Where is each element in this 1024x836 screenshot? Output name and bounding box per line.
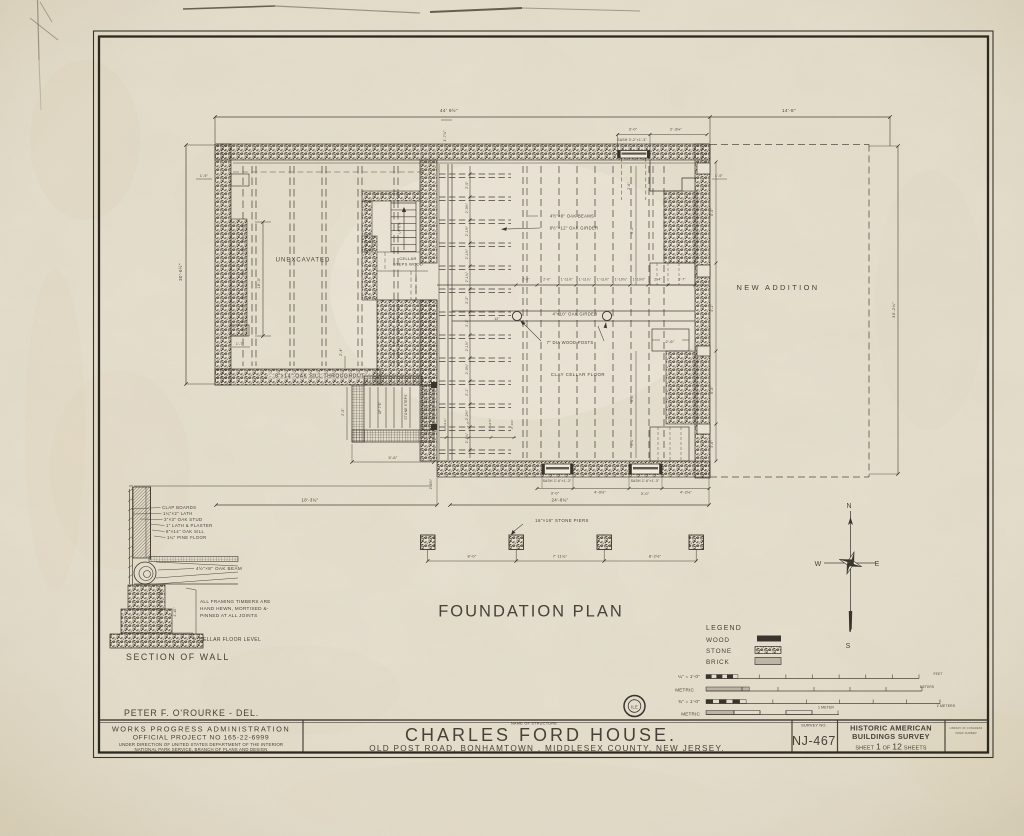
svg-text:2'-1½": 2'-1½": [465, 225, 469, 236]
svg-text:SASH 3'-2"×1'-3": SASH 3'-2"×1'-3": [617, 138, 647, 142]
svg-text:4½"×8" OAK BEAMS: 4½"×8" OAK BEAMS: [550, 214, 594, 219]
svg-text:STONE STEPS: STONE STEPS: [404, 394, 408, 420]
svg-text:2'-4": 2'-4": [654, 278, 662, 282]
svg-text:3'-1": 3'-1": [630, 438, 634, 446]
svg-text:2'-0": 2'-0": [522, 278, 530, 282]
svg-text:3'-6": 3'-6": [710, 440, 714, 448]
svg-text:2'-0": 2'-0": [465, 181, 469, 189]
svg-text:CLAY CELLAR FLOOR: CLAY CELLAR FLOOR: [551, 372, 605, 377]
svg-text:4'-1": 4'-1": [710, 304, 714, 312]
svg-text:2'-6": 2'-6": [666, 339, 675, 344]
svg-text:4½"×8" OAK BEAM: 4½"×8" OAK BEAM: [196, 565, 242, 571]
svg-text:24'-8¾": 24'-8¾": [552, 498, 569, 503]
svg-text:FEET: FEET: [934, 672, 943, 676]
svg-text:1" LATH & PLASTER: 1" LATH & PLASTER: [166, 523, 213, 528]
svg-text:30'-2¼": 30'-2¼": [891, 302, 896, 318]
svg-text:METRIC: METRIC: [681, 712, 700, 717]
svg-text:METERS: METERS: [920, 685, 934, 689]
svg-text:BRICK: BRICK: [706, 659, 730, 666]
svg-text:N: N: [846, 503, 851, 510]
svg-text:2'-3⅛": 2'-3⅛": [670, 128, 682, 132]
svg-text:8"×14" OAK SILL: 8"×14" OAK SILL: [166, 529, 205, 534]
svg-text:1¼" PINE FLOOR: 1¼" PINE FLOOR: [167, 535, 207, 540]
svg-text:3'-0": 3'-0": [551, 492, 560, 496]
svg-text:E: E: [875, 561, 880, 568]
svg-text:1'-10¾": 1'-10¾": [615, 278, 628, 282]
svg-text:FOUNDATION PLAN: FOUNDATION PLAN: [438, 603, 624, 621]
svg-text:2'-0½": 2'-0½": [465, 202, 469, 213]
svg-text:NEW ADDITION: NEW ADDITION: [737, 283, 820, 292]
svg-text:3'-0": 3'-0": [641, 492, 650, 496]
svg-text:UP 6 R: UP 6 R: [398, 222, 402, 234]
svg-text:PETER F. O'ROURKE - DEL.: PETER F. O'ROURKE - DEL.: [124, 708, 259, 718]
svg-text:SASH 2'-6"×1'-3": SASH 2'-6"×1'-3": [631, 479, 660, 483]
svg-text:STONE: STONE: [706, 648, 732, 655]
svg-text:SURVEY NO.: SURVEY NO.: [801, 723, 827, 728]
svg-text:4'-0½": 4'-0½": [594, 491, 606, 495]
svg-text:2'-0¾": 2'-0¾": [465, 363, 469, 374]
svg-text:1'-9": 1'-9": [200, 174, 209, 178]
svg-text:2'-1¼": 2'-1¼": [465, 271, 469, 282]
svg-text:W: W: [815, 561, 822, 568]
svg-text:3"×3" OAK STUD: 3"×3" OAK STUD: [164, 517, 202, 522]
svg-text:NJ-467: NJ-467: [792, 734, 836, 748]
svg-text:5'-6": 5'-6": [389, 455, 398, 460]
svg-text:12": 12": [494, 317, 500, 321]
svg-text:1¼"×2" LATH: 1¼"×2" LATH: [163, 511, 193, 516]
svg-text:UP 7'6": UP 7'6": [378, 401, 382, 414]
svg-text:6'-5": 6'-5": [630, 394, 634, 402]
svg-text:2'-2½": 2'-2½": [465, 409, 469, 420]
svg-text:¼" = 1'-0": ¼" = 1'-0": [678, 674, 700, 679]
svg-text:STEPS WOOD: STEPS WOOD: [393, 262, 423, 267]
svg-text:1'-11½": 1'-11½": [561, 278, 574, 282]
svg-text:CHARLES FORD HOUSE.: CHARLES FORD HOUSE.: [405, 725, 677, 745]
svg-text:2'-8½": 2'-8½": [429, 478, 433, 489]
svg-text:OFFICIAL PROJECT NO 165-22-699: OFFICIAL PROJECT NO 165-22-6999: [133, 735, 270, 742]
svg-text:2'-0": 2'-0": [543, 278, 551, 282]
svg-text:METRIC: METRIC: [675, 688, 694, 693]
svg-text:16"×16" STONE PIERS: 16"×16" STONE PIERS: [535, 518, 589, 523]
svg-text:6'-5": 6'-5": [710, 386, 714, 394]
svg-text:CLAP BOARDS: CLAP BOARDS: [162, 505, 196, 510]
svg-text:1'-7⅞": 1'-7⅞": [443, 130, 447, 142]
svg-text:OLD POST ROAD, BONHAMTOWN ,: OLD POST ROAD, BONHAMTOWN , MIDDLESEX CO…: [369, 744, 725, 753]
svg-text:18'-3¾": 18'-3¾": [302, 498, 319, 503]
svg-text:ILE: ILE: [631, 704, 638, 709]
svg-text:2'-0¼": 2'-0¼": [510, 419, 514, 429]
svg-text:2'-4": 2'-4": [339, 348, 343, 356]
svg-text:BUILDINGS SURVEY: BUILDINGS SURVEY: [852, 732, 930, 741]
svg-text:1'-11½": 1'-11½": [488, 418, 492, 430]
svg-text:NATIONAL PARK SERVICE, BRANCH: NATIONAL PARK SERVICE, BRANCH OF PLANS A…: [134, 747, 267, 752]
svg-text:7" DIA WOOD POSTS: 7" DIA WOOD POSTS: [547, 340, 594, 345]
svg-text:4'-10": 4'-10": [173, 607, 177, 616]
svg-text:SASH 2'-6"×1'-3": SASH 2'-6"×1'-3": [543, 479, 572, 483]
svg-text:2'-1½": 2'-1½": [465, 248, 469, 259]
svg-text:1'-11¾": 1'-11¾": [443, 418, 447, 430]
svg-text:8½"×12" OAK GIRDER: 8½"×12" OAK GIRDER: [550, 226, 599, 231]
svg-text:SECTION OF WALL: SECTION OF WALL: [126, 652, 230, 662]
svg-text:WOOD: WOOD: [706, 637, 730, 644]
svg-text:2'-7": 2'-7": [678, 278, 686, 282]
svg-text:PINNED AT ALL JOINTS: PINNED AT ALL JOINTS: [200, 613, 258, 618]
svg-text:44' 9½": 44' 9½": [440, 107, 458, 113]
svg-text:4'-2⅛": 4'-2⅛": [680, 491, 692, 495]
svg-text:2'-0": 2'-0": [466, 420, 470, 427]
svg-text:1 METER: 1 METER: [818, 706, 834, 710]
svg-text:¾" = 1'-0": ¾" = 1'-0": [678, 699, 700, 704]
svg-text:LIBRARY OF CONGRESS: LIBRARY OF CONGRESS: [950, 726, 983, 730]
svg-text:1'-11½": 1'-11½": [597, 278, 610, 282]
svg-text:2 METERS: 2 METERS: [937, 704, 956, 708]
svg-text:4"×10" OAK GIRDER: 4"×10" OAK GIRDER: [553, 312, 598, 317]
svg-text:LEGEND: LEGEND: [706, 625, 742, 632]
svg-text:CELLAR: CELLAR: [399, 256, 416, 261]
svg-text:2'-1": 2'-1": [465, 319, 469, 327]
svg-text:2'-2": 2'-2": [465, 296, 469, 304]
svg-text:CELLAR FLOOR LEVEL: CELLAR FLOOR LEVEL: [199, 637, 261, 643]
svg-text:3'-0": 3'-0": [629, 128, 638, 132]
svg-text:16'-3": 16'-3": [257, 277, 261, 288]
svg-text:HAND HEWN, MORTISED &-: HAND HEWN, MORTISED &-: [200, 606, 269, 611]
svg-text:30'-6½": 30'-6½": [178, 263, 183, 281]
svg-text:2'-1": 2'-1": [465, 388, 469, 396]
svg-text:2'-1½": 2'-1½": [465, 340, 469, 351]
svg-text:8'-5": 8'-5": [710, 208, 714, 216]
svg-text:INDEX NUMBER: INDEX NUMBER: [955, 731, 976, 735]
svg-text:6'-5": 6'-5": [630, 226, 634, 234]
svg-text:2'-6": 2'-6": [627, 182, 631, 190]
svg-text:WORKS PROGRESS ADMINISTRATION: WORKS PROGRESS ADMINISTRATION: [112, 725, 290, 734]
svg-text:8"×14" OAK SILL THROUGHOUT: 8"×14" OAK SILL THROUGHOUT: [275, 374, 365, 380]
svg-text:2'-5": 2'-5": [341, 408, 345, 416]
svg-text:8'-2½": 8'-2½": [649, 554, 662, 559]
svg-text:8'-0": 8'-0": [468, 554, 477, 559]
svg-text:ALL FRAMING TIMBERS ARE: ALL FRAMING TIMBERS ARE: [200, 599, 271, 604]
svg-text:7' 11¾": 7' 11¾": [553, 554, 568, 559]
svg-text:14'-8": 14'-8": [782, 108, 796, 113]
svg-text:1'-11¼": 1'-11¼": [579, 278, 592, 282]
svg-text:1'-10½": 1'-10½": [633, 278, 646, 282]
svg-text:S: S: [846, 643, 851, 650]
